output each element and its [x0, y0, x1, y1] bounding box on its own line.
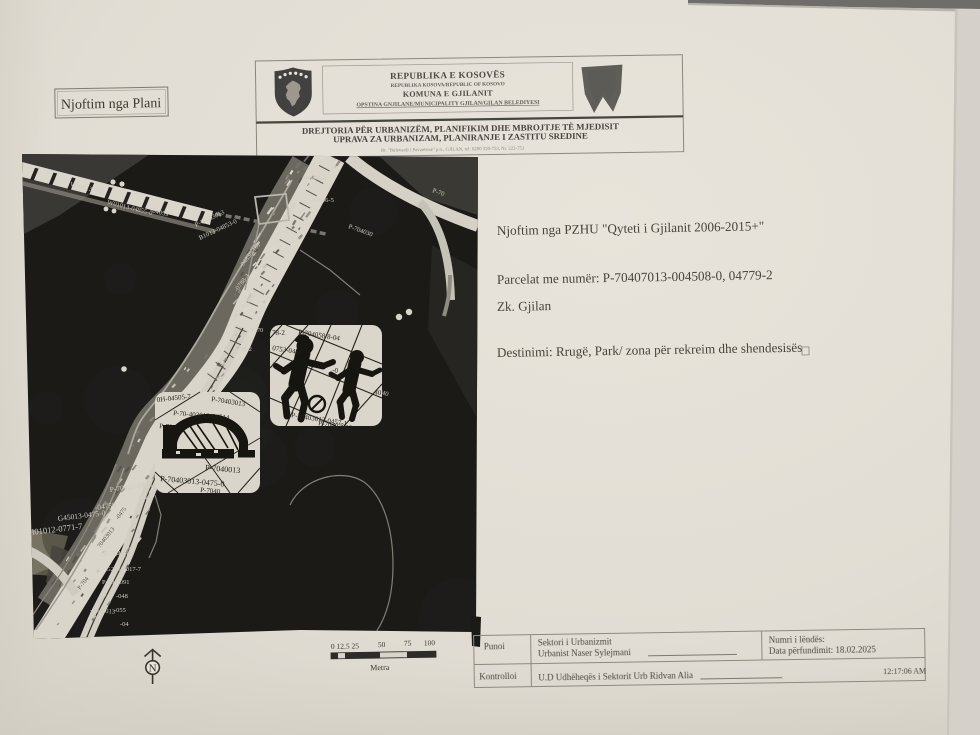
svg-text:78-2: 78-2 [272, 329, 285, 337]
svg-text:P-704-091: P-704-091 [102, 579, 129, 586]
svg-text:Data përfundimit: 18.02.2025: Data përfundimit: 18.02.2025 [769, 644, 877, 656]
svg-text:-048: -048 [116, 593, 128, 600]
svg-text:Zk. Gjilan: Zk. Gjilan [497, 298, 552, 314]
svg-text:-04809-2: -04809-2 [302, 175, 326, 182]
svg-text:78-2: 78-2 [240, 346, 252, 353]
svg-text:N: N [149, 663, 157, 675]
svg-text:Urbanist Naser Sylejmani: Urbanist Naser Sylejmani [538, 647, 632, 658]
svg-text:75: 75 [404, 639, 412, 648]
svg-text:Punoi: Punoi [484, 641, 506, 651]
svg-text:P-70: P-70 [159, 422, 173, 431]
svg-text:100: 100 [424, 638, 436, 647]
svg-text:G2433-017-7: G2433-017-7 [106, 566, 142, 573]
svg-text:-055: -055 [114, 607, 126, 614]
svg-text:50: 50 [378, 640, 386, 649]
svg-text:P-70: P-70 [251, 327, 263, 334]
svg-text:Metra: Metra [370, 663, 390, 672]
svg-text:0 12.5 25: 0 12.5 25 [331, 641, 360, 650]
svg-text:P-7040(0): P-7040(0) [104, 550, 133, 558]
svg-text:Kontrolloi: Kontrolloi [479, 671, 517, 682]
svg-text:12:17:06 AM: 12:17:06 AM [883, 666, 926, 676]
svg-text:Numri i lëndës:: Numri i lëndës: [769, 634, 825, 645]
svg-text:-04: -04 [120, 621, 129, 628]
svg-text:-03696-5: -03696-5 [310, 197, 334, 204]
svg-text:Sektori i Urbanizmit: Sektori i Urbanizmit [538, 636, 613, 647]
svg-text:REPUBLIKA E KOSOVËS: REPUBLIKA E KOSOVËS [390, 69, 505, 81]
svg-text:Njoftim nga Plani: Njoftim nga Plani [61, 96, 162, 113]
svg-text:KOMUNA E GJILANIT: KOMUNA E GJILANIT [403, 89, 493, 99]
